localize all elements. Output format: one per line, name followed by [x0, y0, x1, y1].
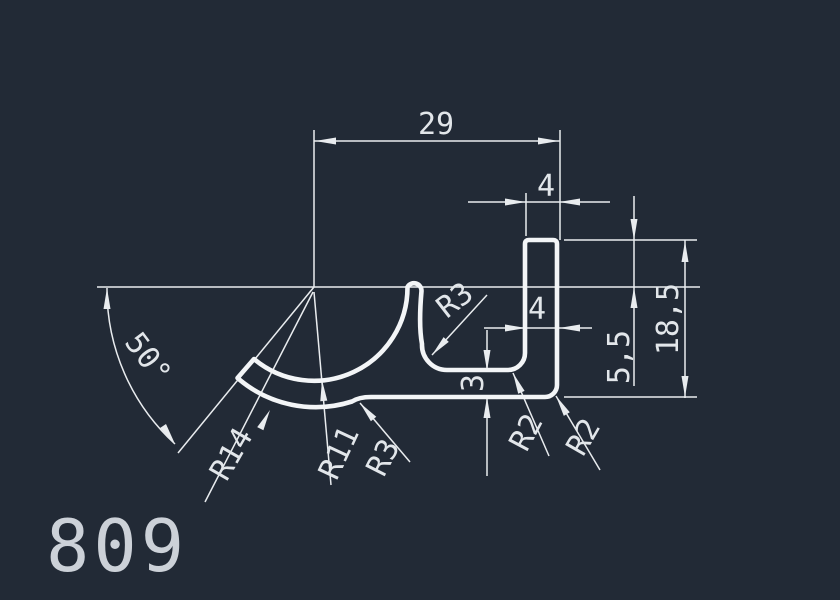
dim-wall-thickness-label: 3	[456, 374, 491, 392]
arrow-29-left	[315, 138, 336, 145]
radius-r3-top-label: R3	[430, 276, 480, 326]
dimension-labels: 29 4 4 3 5,5 18,5 50° R14 R11 R3 R3 R2 R…	[117, 107, 686, 486]
arrow-29-right	[538, 138, 559, 145]
arrow-4-top-left	[505, 199, 526, 206]
radius-r3-bottom-label: R3	[360, 434, 408, 482]
radius-r2-outer-label: R2	[560, 413, 608, 462]
cad-canvas: 29 4 4 3 5,5 18,5 50° R14 R11 R3 R3 R2 R…	[0, 0, 840, 600]
cad-drawing-stage: 29 4 4 3 5,5 18,5 50° R14 R11 R3 R3 R2 R…	[0, 0, 840, 600]
radius-r14-label: R14	[203, 422, 260, 486]
dim-overall-width-label: 29	[418, 107, 454, 142]
arrow-r3-bottom	[360, 403, 376, 421]
radius-r11-label: R11	[312, 421, 367, 485]
arrow-3-bottom	[484, 397, 491, 418]
arrow-18-5-top	[682, 241, 689, 262]
dim-leg-top-width-label: 4	[537, 169, 555, 204]
arrow-18-5-bottom	[682, 376, 689, 397]
arrow-5-5-top	[631, 219, 638, 240]
arrow-4-top-right	[559, 199, 580, 206]
arrow-4-leg-right	[559, 325, 580, 332]
arrow-r2-outer	[556, 396, 570, 416]
arrow-r14	[257, 410, 270, 430]
radius-r2-inner-label: R2	[503, 408, 551, 456]
part-number-label: 809	[46, 504, 188, 588]
profile-outline	[238, 240, 558, 407]
arrow-r2-inner	[513, 373, 525, 394]
arrow-50deg-top	[104, 288, 111, 309]
dim-angle-label: 50°	[117, 326, 178, 390]
arrow-5-5-bottom	[631, 287, 638, 308]
dim-leg-height-label: 5,5	[602, 330, 637, 384]
arrow-50deg-bottom	[160, 424, 175, 444]
dim-leg-width-label: 4	[528, 292, 546, 327]
dim-overall-height-label: 18,5	[651, 283, 686, 355]
arrow-r3-top	[432, 337, 449, 355]
